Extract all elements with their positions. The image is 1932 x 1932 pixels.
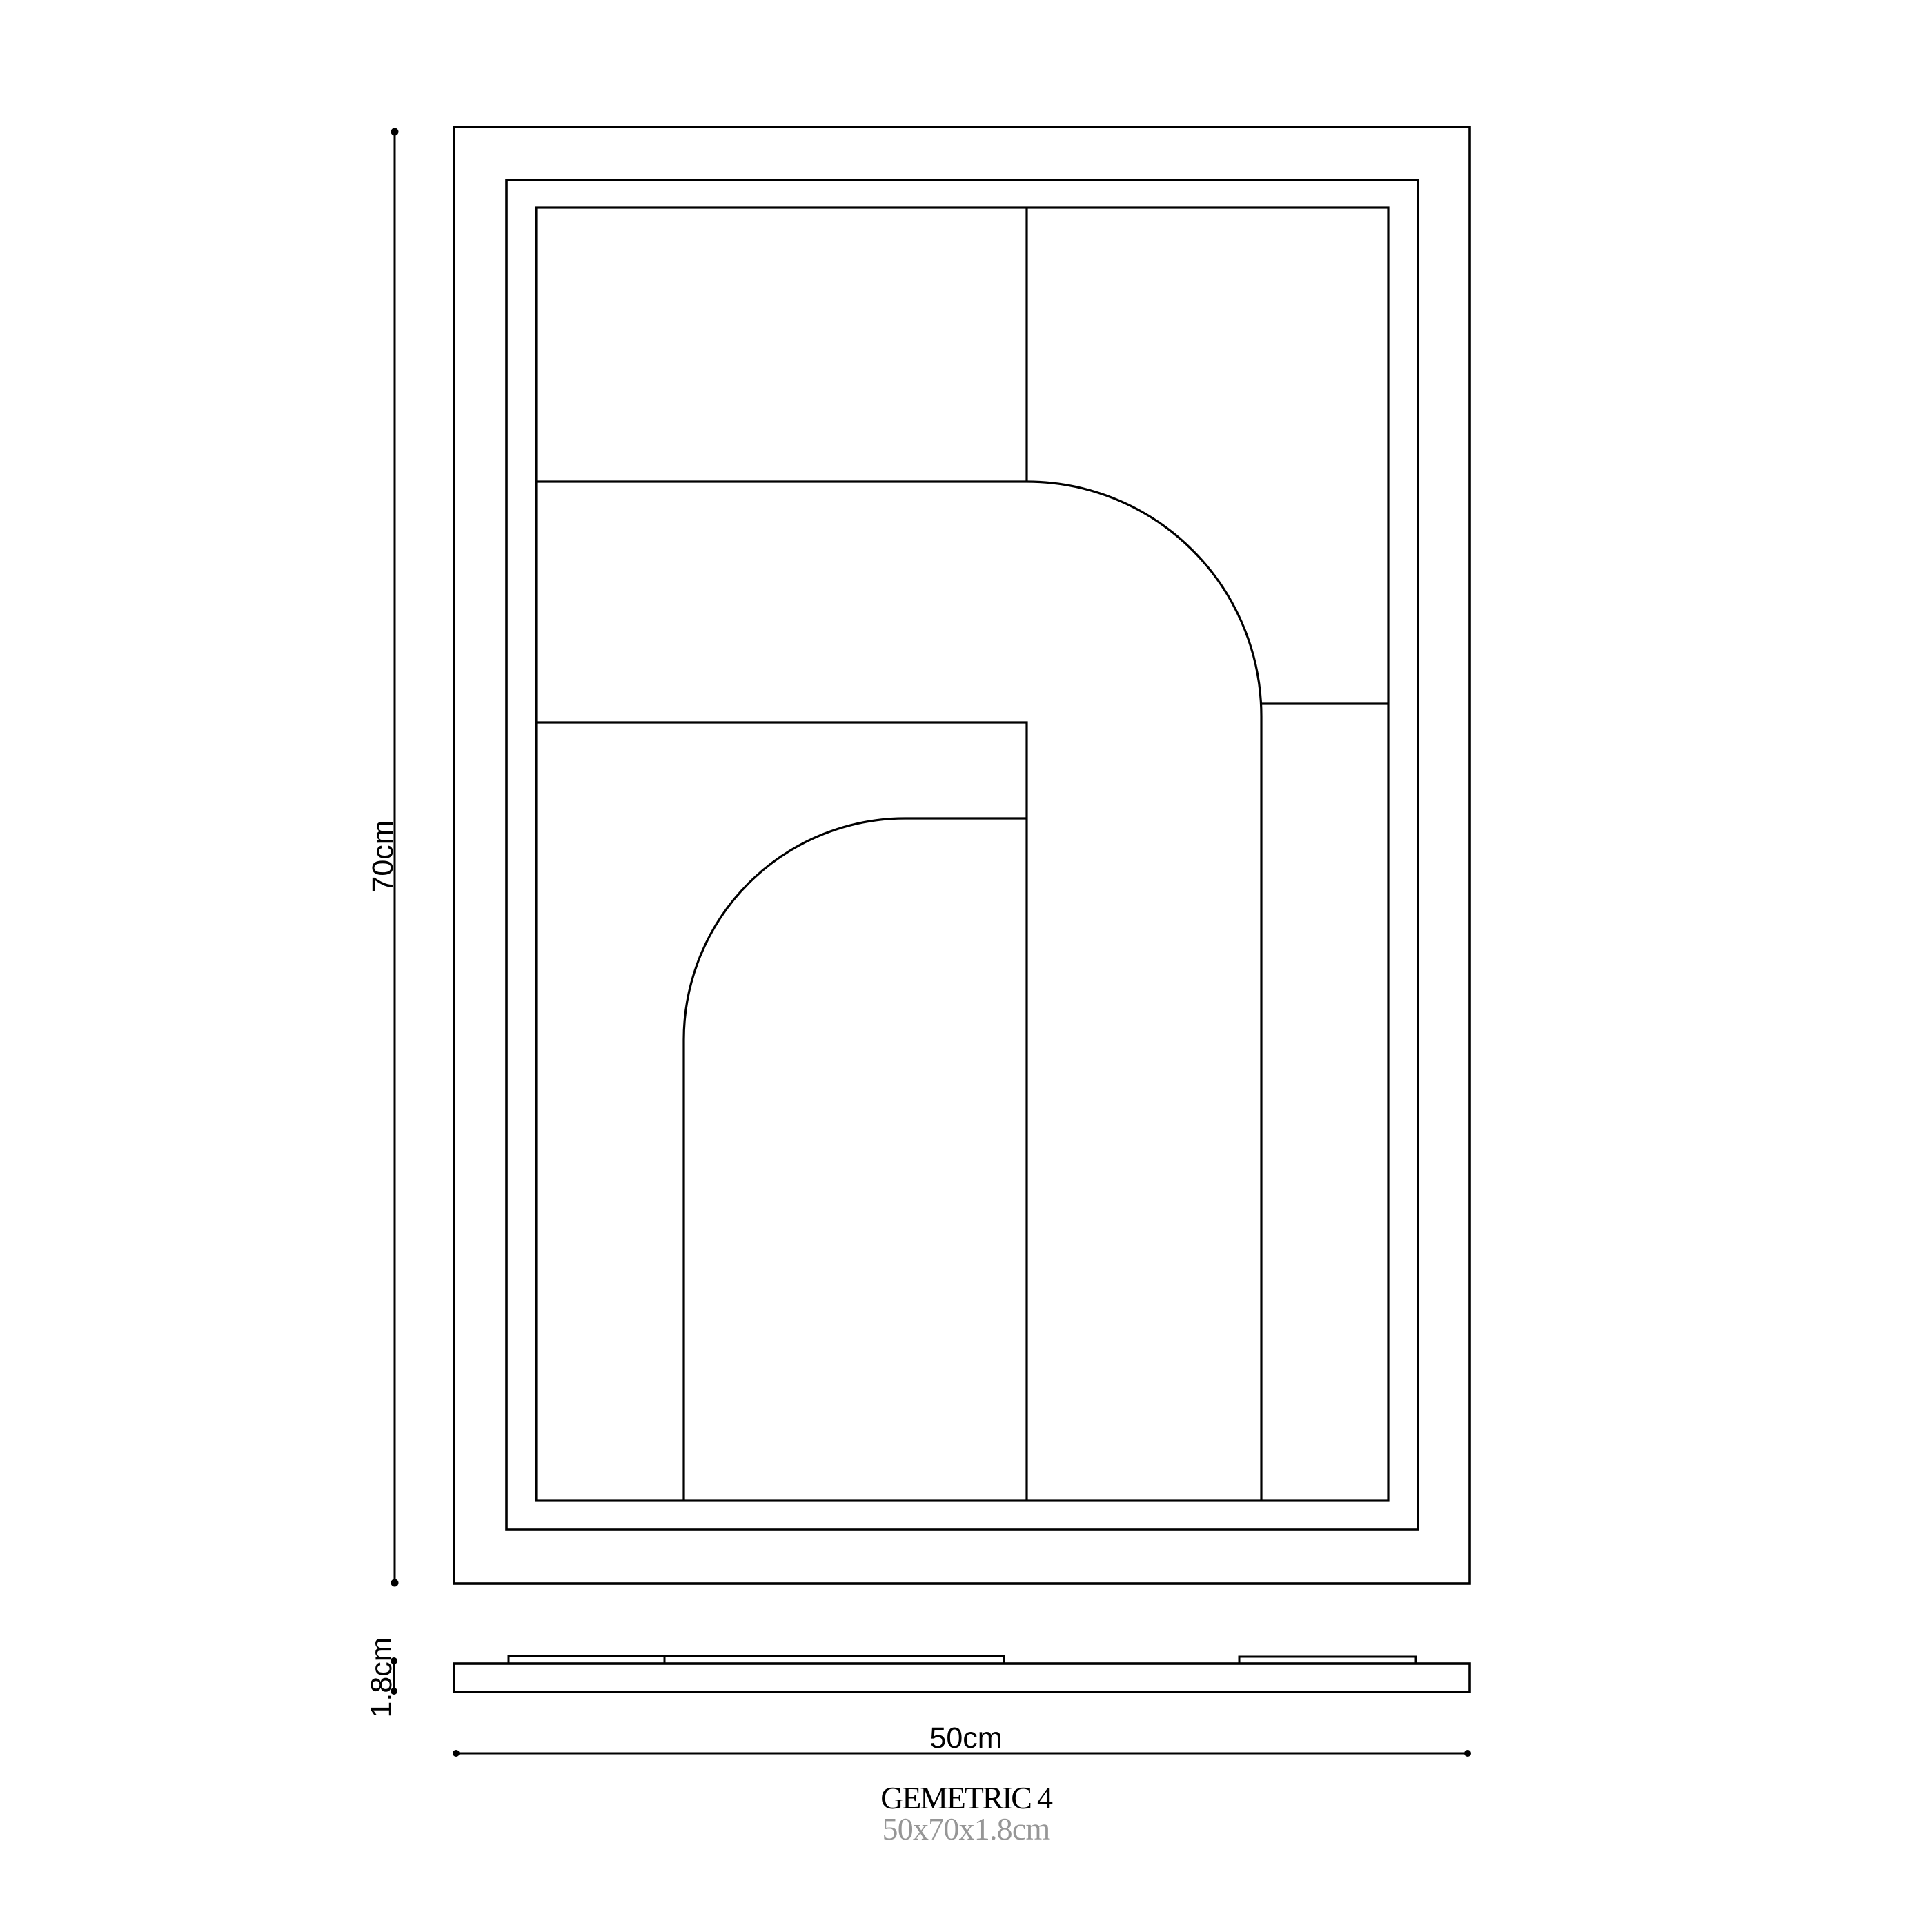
svg-text:70cm: 70cm — [366, 820, 400, 892]
svg-text:1.8cm: 1.8cm — [365, 1637, 398, 1717]
svg-text:50cm: 50cm — [929, 1722, 1002, 1755]
svg-text:GEMETRIC 4: GEMETRIC 4 — [880, 1780, 1053, 1815]
svg-text:50x70x1.8cm: 50x70x1.8cm — [883, 1811, 1051, 1846]
